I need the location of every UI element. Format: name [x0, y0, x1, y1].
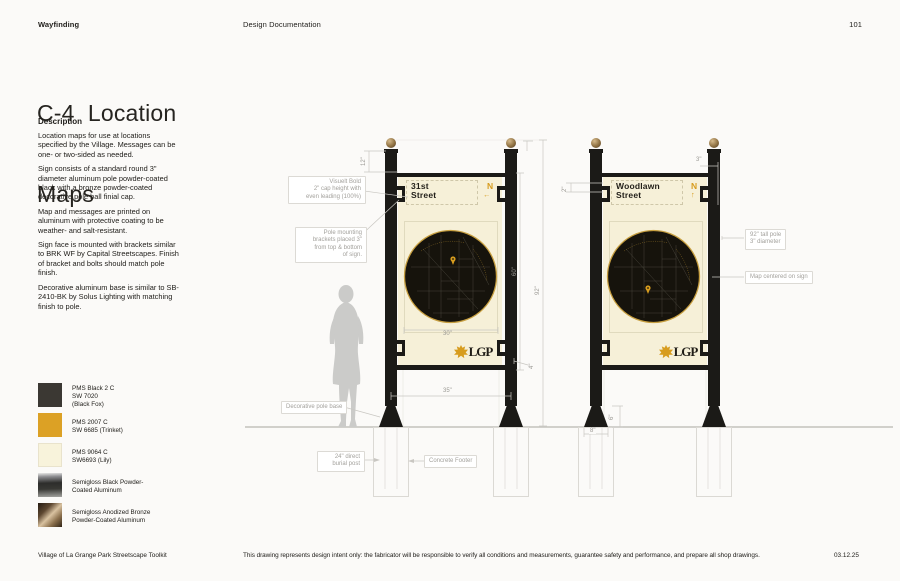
swatch-label: Semigloss Black Powder-Coated Aluminum — [72, 479, 143, 495]
swatch-label: PMS 2007 CSW 6685 (Trinket) — [72, 419, 123, 435]
concrete-footer — [578, 427, 614, 497]
color-swatch-gold — [38, 413, 62, 437]
description-paragraph: Sign consists of a standard round 3" dia… — [38, 164, 180, 202]
dim-map-width: 30" — [443, 331, 452, 337]
description-paragraph: Decorative aluminum base is similar to S… — [38, 283, 180, 311]
footer-project: Village of La Grange Park Streetscape To… — [38, 552, 167, 559]
decorative-pole-base — [379, 406, 403, 427]
maple-leaf-icon — [659, 345, 673, 359]
north-arrow-icon: ↑ — [691, 191, 695, 198]
sign2-bottom-rail — [596, 365, 716, 370]
callout-pole-base: Decorative pole base — [281, 401, 347, 414]
north-arrow-icon: ← — [483, 191, 491, 198]
color-swatch-semigloss-black — [38, 473, 62, 497]
dim-gap: 3" — [696, 157, 701, 163]
callout-typography: Visuelt Bold 2" cap height with even lea… — [288, 176, 366, 204]
sign2-street-name: Woodlawn Street — [616, 182, 660, 201]
dim-base-height: 6" — [609, 415, 615, 420]
pole-collar — [707, 149, 721, 153]
lgp-logo: LGP — [443, 343, 503, 360]
callout-concrete-footer: Concrete Footer — [424, 455, 477, 468]
concrete-footer — [493, 427, 529, 497]
pole-collar — [504, 149, 518, 153]
description-body: Location maps for use at locations speci… — [38, 131, 180, 316]
dim-sign-height: 60" — [512, 267, 518, 276]
dim-cap-height: 2" — [562, 187, 568, 192]
dim-pole-height: 92" — [535, 286, 541, 295]
header-doc-label: Design Documentation — [243, 20, 321, 29]
lgp-logo-text: LGP — [674, 344, 698, 360]
dim-pole-top: 12" — [361, 157, 367, 166]
ball-finial-icon — [506, 138, 516, 148]
swatch-label: PMS 9064 CSW6693 (Lily) — [72, 449, 112, 465]
callout-burial-post: 24" direct burial post — [317, 451, 365, 472]
lgp-logo: LGP — [648, 343, 708, 360]
color-swatch-cream — [38, 443, 62, 467]
color-swatch-black — [38, 383, 62, 407]
mounting-bracket — [397, 340, 405, 356]
decorative-pole-base — [584, 406, 608, 427]
north-letter: N — [691, 182, 697, 190]
location-map-circle — [403, 229, 498, 324]
pole-collar — [589, 149, 603, 153]
north-letter: N — [487, 182, 493, 190]
mounting-bracket — [602, 340, 610, 356]
decorative-pole-base — [702, 406, 726, 427]
ball-finial-icon — [709, 138, 719, 148]
sign1-bottom-rail — [391, 365, 511, 370]
color-swatch-bronze — [38, 503, 62, 527]
dim-base-width: 8" — [589, 428, 596, 434]
description-paragraph: Location maps for use at locations speci… — [38, 131, 180, 159]
callout-brackets: Pole mounting brackets placed 3" from to… — [295, 227, 367, 263]
decorative-pole-base — [499, 406, 523, 427]
maple-leaf-icon — [454, 345, 468, 359]
description-paragraph: Map and messages are printed on aluminum… — [38, 207, 180, 235]
footer-date: 03.12.25 — [834, 552, 859, 559]
swatch-label: Semigloss Anodized BronzePowder-Coated A… — [72, 509, 150, 525]
mounting-bracket — [700, 186, 708, 202]
mounting-bracket — [602, 186, 610, 202]
page-number: 101 — [840, 20, 862, 29]
location-map-circle — [606, 229, 701, 324]
lgp-logo-text: LGP — [469, 344, 493, 360]
header-section-label: Wayfinding — [38, 20, 79, 29]
mounting-bracket — [497, 186, 505, 202]
footer-disclaimer: This drawing represents design intent on… — [243, 552, 823, 559]
callout-pole-size: 92" tall pole 3" diameter — [745, 229, 786, 250]
pole-collar — [384, 149, 398, 153]
dim-sign-width: 35" — [443, 388, 452, 394]
description-heading: Description — [38, 117, 82, 126]
description-paragraph: Sign face is mounted with brackets simil… — [38, 240, 180, 278]
callout-map-centered: Map centered on sign — [745, 271, 813, 284]
ball-finial-icon — [386, 138, 396, 148]
swatch-label: PMS Black 2 CSW 7020(Black Fox) — [72, 385, 114, 409]
dim-bracket: 4" — [529, 364, 535, 369]
concrete-footer — [696, 427, 732, 497]
sign1-street-name: 31st Street — [411, 182, 436, 201]
ball-finial-icon — [591, 138, 601, 148]
document-page: Wayfinding Design Documentation 101 C-4 … — [0, 0, 900, 581]
concrete-footer — [373, 427, 409, 497]
mounting-bracket — [397, 186, 405, 202]
